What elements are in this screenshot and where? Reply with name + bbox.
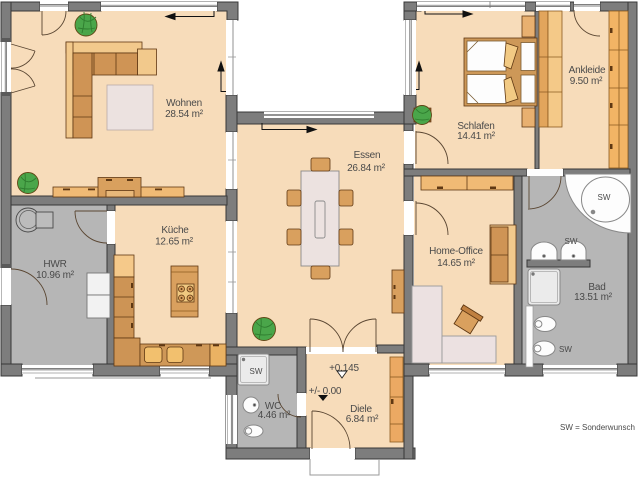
svg-text:SW = Sonderwunsch: SW = Sonderwunsch: [560, 423, 635, 432]
svg-text:SW: SW: [250, 367, 263, 376]
svg-text:10.96 m²: 10.96 m²: [36, 270, 75, 281]
svg-text:Küche: Küche: [161, 225, 189, 236]
svg-text:13.51 m²: 13.51 m²: [574, 292, 613, 303]
svg-text:6.84 m²: 6.84 m²: [346, 414, 379, 425]
svg-text:HWR: HWR: [43, 259, 66, 270]
svg-text:9.50 m²: 9.50 m²: [570, 76, 603, 87]
svg-text:SW: SW: [559, 345, 572, 354]
svg-text:26.84 m²: 26.84 m²: [347, 163, 386, 174]
svg-text:SW: SW: [565, 237, 578, 246]
svg-text:Essen: Essen: [354, 150, 381, 161]
svg-text:Ankleide: Ankleide: [569, 65, 606, 76]
svg-text:4.46 m²: 4.46 m²: [258, 410, 291, 421]
svg-text:28.54 m²: 28.54 m²: [165, 109, 204, 120]
svg-text:Home-Office: Home-Office: [429, 246, 483, 257]
svg-text:14.41 m²: 14.41 m²: [457, 131, 496, 142]
svg-text:SW: SW: [598, 193, 611, 202]
svg-text:14.65 m²: 14.65 m²: [437, 258, 476, 269]
svg-text:Wohnen: Wohnen: [166, 98, 202, 109]
svg-text:12.65 m²: 12.65 m²: [155, 237, 194, 248]
